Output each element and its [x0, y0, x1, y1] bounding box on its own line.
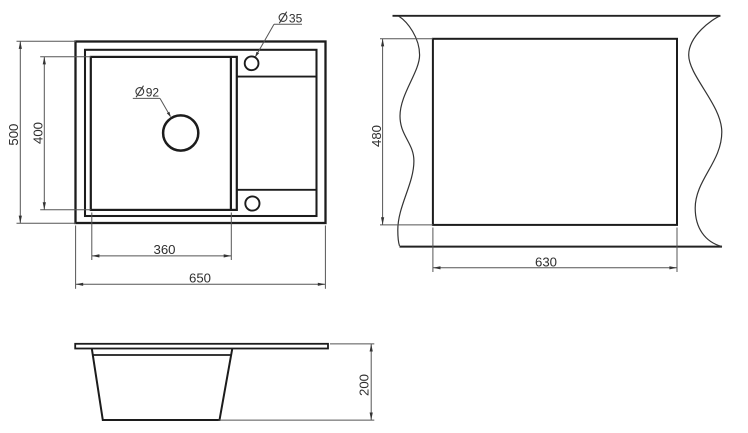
- svg-text:360: 360: [153, 242, 175, 257]
- svg-text:200: 200: [356, 374, 371, 396]
- svg-text:650: 650: [189, 270, 211, 285]
- svg-text:400: 400: [31, 122, 46, 144]
- svg-text:92: 92: [146, 85, 160, 99]
- svg-text:630: 630: [535, 254, 557, 269]
- svg-text:500: 500: [6, 124, 21, 146]
- svg-text:35: 35: [289, 11, 303, 25]
- svg-text:480: 480: [369, 125, 384, 147]
